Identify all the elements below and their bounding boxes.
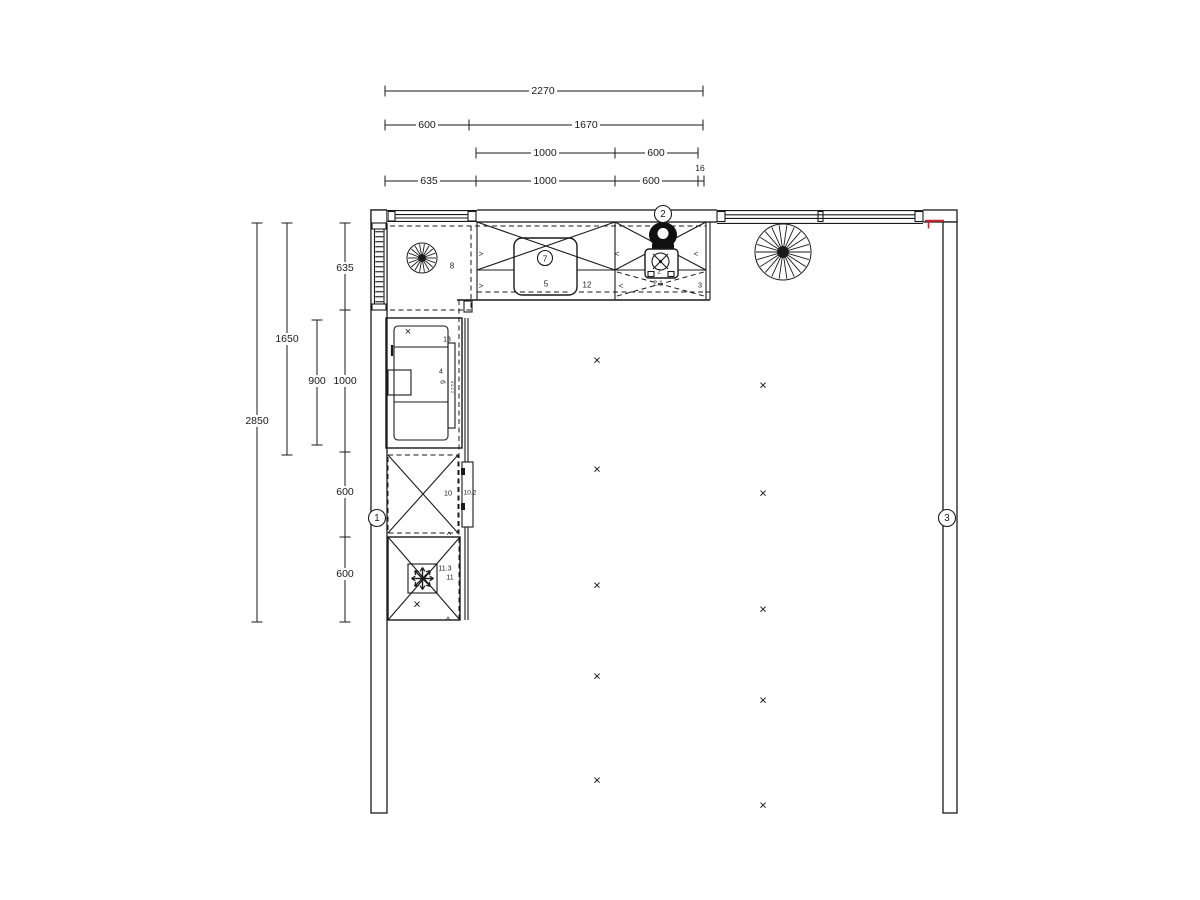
fan-spoke [784, 258, 787, 279]
item-label: 10.2 [464, 490, 477, 497]
item-label: 9 [441, 380, 448, 384]
item-label: > [479, 250, 484, 259]
dim-label: 635 [420, 175, 438, 187]
item-label: 11 [446, 575, 453, 582]
fan-spoke [779, 258, 782, 279]
item-label: 12 [583, 281, 592, 290]
fan-spoke [420, 262, 422, 272]
position-marker-number: 7 [543, 254, 548, 264]
cabinet-x-mark: × [405, 326, 411, 338]
faucet-symbol [649, 222, 677, 251]
dim-label: 1000 [533, 147, 557, 159]
dim-label: 900 [308, 375, 326, 387]
dim-label: 1670 [574, 119, 598, 131]
floor-plan-canvas: 2270600167010006006351000600285016509006… [0, 0, 1200, 900]
ceiling-light-x: × [593, 669, 601, 684]
fan-spoke [789, 254, 809, 260]
ceiling-light-x: × [759, 602, 767, 617]
item-label: 16 [695, 163, 705, 173]
item-label: > [479, 282, 484, 291]
sink-basin-symbol [645, 249, 678, 278]
fan-spoke [779, 225, 782, 246]
dim-label: 600 [642, 175, 660, 187]
dim-label: 1650 [275, 333, 299, 345]
item-label: 2 [657, 269, 661, 276]
item-label: ^ [447, 530, 452, 540]
dim-label: 600 [336, 486, 354, 498]
ceiling-light-x: × [759, 798, 767, 813]
item-label: 2.1 [653, 281, 663, 288]
dim-label: 600 [418, 119, 436, 131]
item-label: 11.3 [438, 566, 451, 573]
item-label: 5 [544, 280, 549, 289]
dim-label: 600 [336, 568, 354, 580]
dim-label: 2850 [245, 415, 269, 427]
ceiling-light-x: × [593, 773, 601, 788]
item-label: < [615, 250, 620, 259]
ceiling-light-x: × [593, 353, 601, 368]
dim-label: 2270 [531, 85, 555, 97]
window-top-right [717, 209, 923, 223]
position-marker-number: 2 [660, 209, 665, 220]
item-label: 13 [443, 337, 451, 344]
item-label: 10 [444, 489, 452, 498]
ceiling-light-x: × [593, 578, 601, 593]
item-label: < [619, 282, 624, 291]
dim-label: 600 [647, 147, 665, 159]
cabinet-x-mark: × [413, 597, 421, 612]
item-label: 4 [439, 369, 443, 376]
dim-label: 635 [336, 262, 354, 274]
ceiling-light-x: × [759, 378, 767, 393]
item-label: 8 [450, 262, 455, 271]
annotations-layer: 2270600167010006006351000600285016509006… [243, 85, 956, 813]
dim-label: 1000 [333, 375, 357, 387]
fan-spoke [420, 244, 422, 254]
item-label: 2.5 6.6 [450, 380, 455, 393]
fan-spoke [789, 244, 809, 250]
fan-spoke [423, 244, 425, 254]
item-label: < [694, 250, 699, 259]
dim-label: 1000 [533, 175, 557, 187]
ceiling-light-x: × [759, 486, 767, 501]
fan-hub [418, 254, 426, 262]
fan-hub [777, 246, 789, 258]
item-label: 3 [698, 281, 702, 290]
ceiling-light-x: × [593, 462, 601, 477]
fan-spoke [423, 262, 425, 272]
fan-spoke [757, 244, 777, 250]
window-top-left [387, 209, 477, 223]
floor-plan-viewport[interactable]: 2270600167010006006351000600285016509006… [0, 0, 1200, 900]
position-marker-number: 3 [944, 513, 949, 524]
fan-spoke [757, 254, 777, 260]
fan-spoke [784, 225, 787, 246]
ceiling-light-x: × [759, 693, 767, 708]
window-left-wall [371, 223, 388, 310]
position-marker-number: 1 [374, 513, 379, 524]
